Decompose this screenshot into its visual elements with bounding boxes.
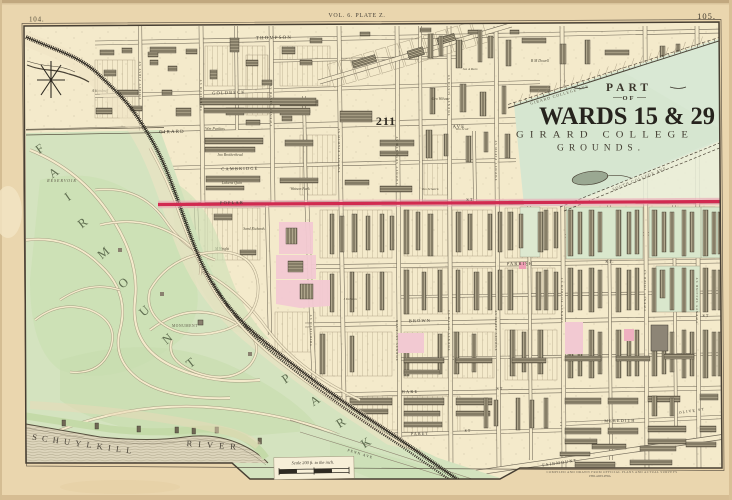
svg-text:Scale 200 ft. to the inch.: Scale 200 ft. to the inch. [292, 460, 335, 466]
svg-text:105.: 105. [697, 11, 716, 21]
svg-text:ST.: ST. [605, 259, 614, 264]
svg-text:PARRISH: PARRISH [507, 261, 534, 266]
svg-text:ST: ST [466, 197, 473, 202]
svg-text:ST: ST [465, 429, 472, 433]
svg-text:B M Dowell: B M Dowell [531, 59, 549, 63]
svg-text:TWENTY NINTH ST: TWENTY NINTH ST [269, 84, 273, 127]
svg-text:HARE: HARE [402, 389, 419, 394]
svg-text:TWENTY SEVENTH ST: TWENTY SEVENTH ST [395, 135, 399, 184]
svg-text:TWENTY SEVENTH: TWENTY SEVENTH [395, 319, 399, 361]
svg-text:CAMBRIDGE: CAMBRIDGE [221, 166, 258, 172]
svg-text:Jno Brotherhead: Jno Brotherhead [217, 153, 243, 157]
svg-text:GROUNDS.: GROUNDS. [557, 144, 645, 154]
svg-text:Lukens Quin: Lukens Quin [221, 180, 242, 185]
svg-text:PHILADELPHIA: PHILADELPHIA [589, 474, 611, 478]
svg-text:BROWN: BROWN [409, 318, 431, 323]
svg-text:ST: ST [702, 313, 709, 318]
svg-text:RESERVOIR: RESERVOIR [46, 178, 77, 183]
svg-text:Wm Parkins: Wm Parkins [205, 126, 225, 131]
svg-text:TWENTY SIXTH ST: TWENTY SIXTH ST [447, 74, 451, 116]
svg-text:THOMPSON: THOMPSON [256, 36, 292, 42]
svg-text:TWENTY FIFTH ST: TWENTY FIFTH ST [494, 309, 498, 350]
svg-text:PARET: PARET [411, 431, 429, 436]
svg-text:J Dobson: J Dobson [343, 297, 357, 301]
svg-text:OF: OF [622, 95, 635, 102]
svg-text:Saml Richards: Saml Richards [243, 227, 265, 231]
svg-text:VOL. 6. PLATE Z.: VOL. 6. PLATE Z. [328, 13, 385, 19]
svg-text:ST: ST [496, 386, 503, 391]
svg-text:Watson Park: Watson Park [290, 187, 310, 191]
svg-text:THIRTIETH ST: THIRTIETH ST [309, 314, 313, 346]
svg-text:WARDS 15 & 29: WARDS 15 & 29 [539, 103, 715, 130]
svg-text:Jas A Rees: Jas A Rees [462, 67, 478, 71]
svg-text:Van Schaick: Van Schaick [421, 187, 438, 191]
svg-text:TWENTY FIFTH ST: TWENTY FIFTH ST [494, 139, 498, 180]
svg-text:104.: 104. [29, 16, 44, 24]
svg-text:THIRTIETH ST: THIRTIETH ST [199, 79, 203, 111]
svg-text:COMPILED AND DRAWN FROM OFFICI: COMPILED AND DRAWN FROM OFFICIAL PLANS A… [547, 470, 678, 474]
svg-text:AVE: AVE [453, 125, 466, 130]
svg-text:PART: PART [606, 82, 652, 94]
svg-text:211: 211 [376, 114, 396, 128]
svg-text:TWENTY FOURTH ST: TWENTY FOURTH ST [560, 277, 564, 323]
svg-text:TWENTY EIGHTH ST: TWENTY EIGHTH ST [337, 127, 341, 172]
svg-text:MEREDITH: MEREDITH [604, 418, 635, 424]
svg-text:TWENTY SIXTH ST: TWENTY SIXTH ST [447, 309, 451, 351]
svg-text:GIRARD: GIRARD [159, 130, 185, 135]
svg-text:POPLAR: POPLAR [220, 200, 244, 205]
svg-text:THIRTY FIRST ST: THIRTY FIRST ST [138, 60, 142, 99]
svg-text:TWENTY SECOND ST: TWENTY SECOND ST [695, 277, 699, 323]
svg-text:GIRARD COLLEGE: GIRARD COLLEGE [516, 131, 694, 141]
svg-text:Geo Wilson: Geo Wilson [432, 97, 449, 101]
svg-text:MONUMENT: MONUMENT [172, 324, 198, 328]
svg-text:TWENTY THIRD ST: TWENTY THIRD ST [643, 269, 647, 311]
